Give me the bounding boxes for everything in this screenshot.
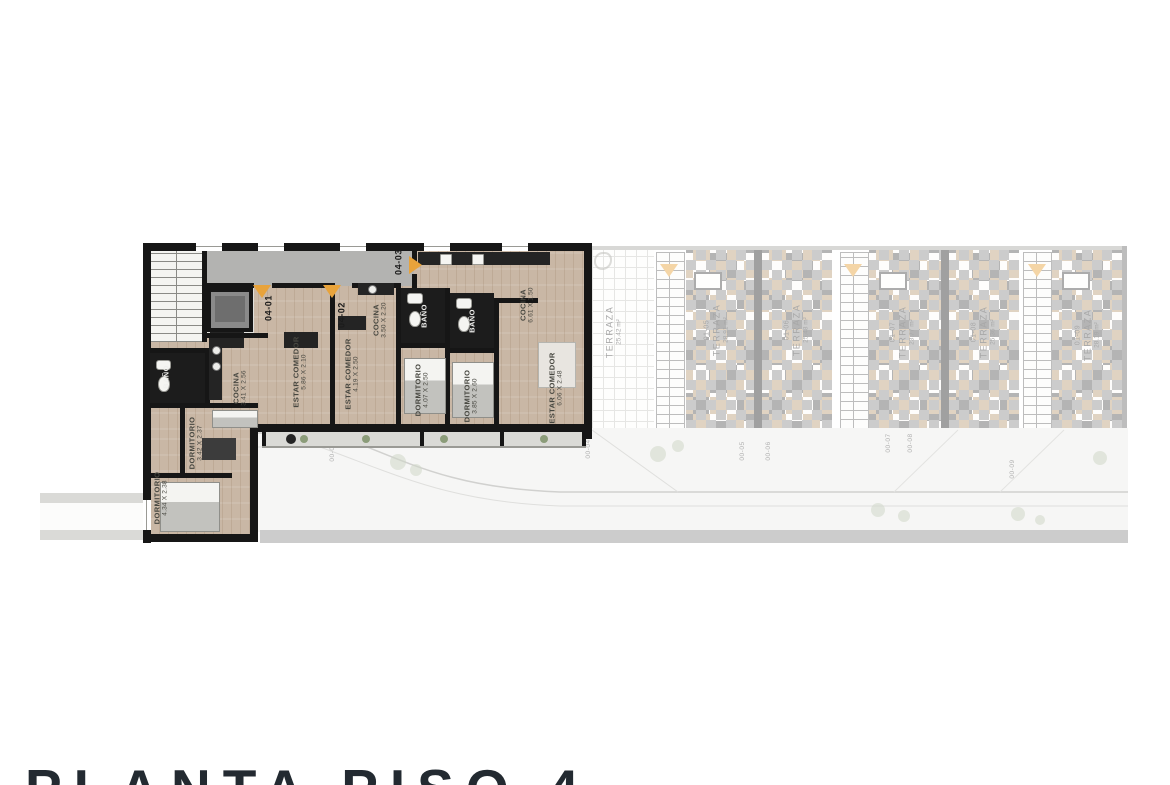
wall-segment (262, 432, 266, 446)
wall-segment (420, 432, 424, 446)
floor-plan-page: TERRAZA 25.42 m² 01-05 TERRAZA 28.91 m² … (0, 0, 1170, 785)
terrace-label: 01-07 TERRAZA 23.77 m² (890, 306, 917, 359)
street-label: 00-05 (739, 441, 747, 460)
plant-icon (440, 435, 448, 443)
elevator-cab (215, 296, 245, 322)
sink-icon (456, 298, 472, 309)
wall-segment (592, 246, 1124, 250)
plant-icon (300, 435, 308, 443)
wall-segment (330, 283, 335, 428)
unit-label: 04-03 (394, 249, 405, 275)
unit-label: 04-01 (264, 295, 275, 321)
wall-segment (180, 408, 185, 478)
appliance-icon (440, 254, 452, 265)
planter-icon (879, 272, 907, 290)
wall-segment (412, 274, 417, 288)
window-marker (502, 243, 528, 251)
room-label: ESTAR COMEDOR5.86 X 2.10 (292, 336, 309, 407)
entrance-arrow-icon (409, 256, 422, 274)
window-marker (424, 243, 450, 251)
page-title: PLANTA PISO 4 (25, 762, 591, 785)
room-label: DORMITORIO3.85 X 2.60 (463, 370, 480, 423)
room-label: COCINA3.50 X 2.20 (372, 302, 389, 337)
appliance-icon (472, 254, 484, 265)
bed-furniture (212, 410, 258, 428)
entrance-arrow-icon (253, 285, 271, 298)
burner-icon (212, 362, 221, 371)
room-label: DORMITORIO4.34 X 2.38 (153, 472, 170, 525)
burner-icon (212, 346, 221, 355)
wall-segment (582, 432, 586, 446)
room-label: COCINA6.61 X 1.50 (519, 287, 536, 322)
room-label: ESTAR COMEDOR4.19 X 2.50 (344, 338, 361, 409)
corridor (206, 250, 414, 286)
room-label: ESTAR COMEDOR6.06 X 2.48 (548, 352, 565, 423)
shrub-icon (390, 440, 1107, 525)
street-label: 00-07 (885, 433, 893, 452)
wall-segment (250, 424, 258, 542)
wall-segment (445, 348, 499, 353)
room-label: DORMITORIO4.07 X 2.50 (414, 364, 431, 417)
wall-segment (396, 343, 450, 348)
wall-segment (500, 432, 504, 446)
street-label: 00-06 (765, 441, 773, 460)
entrance-arrow-icon (1028, 264, 1046, 277)
street-stub (40, 493, 150, 540)
window-marker (196, 243, 222, 251)
window-marker (258, 243, 284, 251)
sink-icon (407, 293, 423, 304)
wall-segment (143, 534, 258, 542)
entrance-arrow-icon (660, 264, 678, 277)
unit-label: 04-02 (337, 302, 348, 328)
terrace-label: 01-09 TERRAZA 28.19 m² (1075, 309, 1102, 362)
terrace-label: TERRAZA 25.42 m² (605, 306, 624, 359)
entrance-arrow-icon (844, 264, 862, 277)
balcony-strip (262, 432, 586, 448)
sidewalk-strip (260, 530, 1128, 543)
room-label: BAÑO (468, 309, 477, 333)
terrace-label: 01-06 TERRAZA 25.48 m² (784, 304, 811, 357)
street-label: 00-09 (1009, 459, 1017, 478)
room-label: DORMITORIO3.42 X 2.37 (188, 417, 205, 470)
stairs-icon (150, 250, 204, 342)
plant-icon (362, 435, 370, 443)
street-label: 00-08 (907, 433, 915, 452)
window-marker (340, 243, 366, 251)
terrace-label: 01-05 TERRAZA 28.91 m² (704, 304, 731, 357)
plant-icon (540, 435, 548, 443)
street-label: 00-04 (585, 439, 593, 458)
planter-icon (1062, 272, 1090, 290)
entrance-arrow-icon (323, 285, 341, 298)
window-marker (143, 500, 151, 530)
wall-segment (494, 298, 499, 428)
terrace-label: 01-08 TERRAZA 25.36 m² (971, 306, 998, 359)
room-label: COCINA3.41 X 2.56 (232, 370, 249, 405)
wall-segment (250, 424, 592, 432)
burner-icon (368, 285, 377, 294)
room-label: BAÑO (162, 365, 171, 389)
wall-segment (202, 250, 207, 342)
wall-segment (202, 283, 254, 288)
wall-segment (584, 243, 592, 439)
desk (202, 438, 236, 460)
elevator-icon (207, 288, 253, 332)
planter-icon (694, 272, 722, 290)
room-label: BAÑO (420, 304, 429, 328)
balcony-table (286, 434, 296, 444)
kitchen-counter (418, 252, 550, 265)
